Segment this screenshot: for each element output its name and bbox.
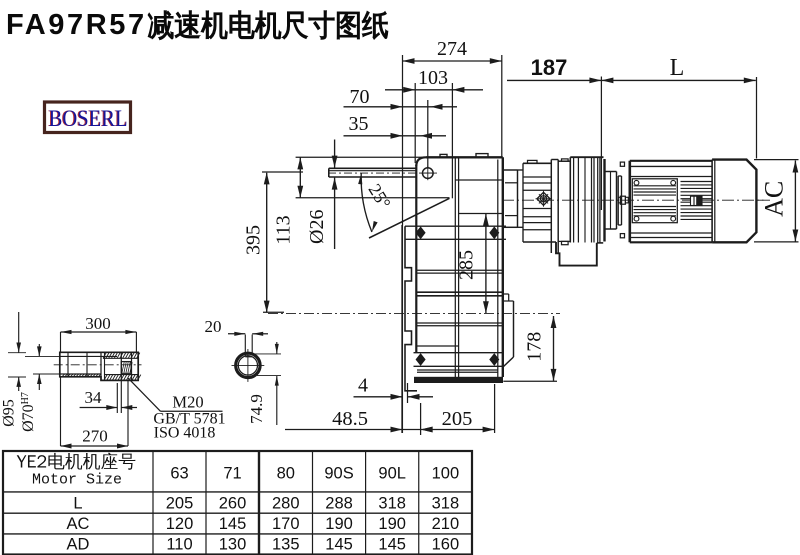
- svg-text:FA97R57: FA97R57: [6, 9, 147, 41]
- svg-text:187: 187: [531, 55, 568, 80]
- svg-text:300: 300: [85, 314, 111, 333]
- svg-text:90S: 90S: [324, 465, 353, 483]
- svg-text:145: 145: [219, 515, 247, 533]
- svg-text:205: 205: [166, 494, 194, 512]
- svg-text:M20: M20: [172, 393, 203, 412]
- svg-text:135: 135: [272, 536, 300, 554]
- svg-text:L: L: [73, 494, 82, 512]
- svg-text:120: 120: [166, 515, 194, 533]
- svg-text:130: 130: [219, 536, 247, 554]
- svg-text:160: 160: [432, 536, 460, 554]
- svg-text:145: 145: [325, 536, 353, 554]
- svg-text:318: 318: [432, 494, 460, 512]
- svg-text:100: 100: [432, 465, 460, 483]
- svg-text:74.9: 74.9: [247, 394, 266, 424]
- svg-text:178: 178: [524, 332, 546, 362]
- svg-text:48.5: 48.5: [332, 408, 368, 430]
- svg-text:Ø95: Ø95: [1, 399, 18, 427]
- svg-text:280: 280: [272, 494, 300, 512]
- svg-text:AC: AC: [760, 181, 789, 217]
- svg-text:288: 288: [325, 494, 353, 512]
- svg-text:80: 80: [277, 465, 295, 483]
- svg-text:274: 274: [437, 38, 467, 60]
- svg-text:190: 190: [378, 515, 406, 533]
- svg-text:20: 20: [205, 317, 222, 336]
- svg-text:90L: 90L: [378, 465, 406, 483]
- svg-text:285: 285: [456, 250, 478, 280]
- svg-text:63: 63: [170, 465, 188, 483]
- svg-text:110: 110: [166, 536, 192, 554]
- svg-text:318: 318: [378, 494, 406, 512]
- svg-text:AD: AD: [67, 536, 90, 554]
- svg-text:260: 260: [219, 494, 247, 512]
- svg-text:205: 205: [442, 408, 473, 430]
- svg-text:34: 34: [85, 388, 103, 407]
- svg-text:L: L: [670, 55, 685, 81]
- svg-text:71: 71: [223, 465, 241, 483]
- svg-text:ISO 4018: ISO 4018: [154, 425, 216, 442]
- svg-text:Motor Size: Motor Size: [32, 472, 122, 489]
- svg-text:210: 210: [432, 515, 460, 533]
- svg-text:BOSERL: BOSERL: [49, 106, 128, 132]
- svg-text:145: 145: [378, 536, 406, 554]
- svg-text:70: 70: [350, 86, 370, 108]
- svg-text:113: 113: [273, 215, 295, 244]
- svg-text:103: 103: [418, 67, 448, 89]
- svg-text:395: 395: [243, 225, 265, 255]
- svg-text:4: 4: [358, 375, 368, 397]
- svg-text:35: 35: [349, 113, 369, 135]
- svg-text:Ø26: Ø26: [306, 209, 328, 243]
- svg-text:AC: AC: [67, 515, 90, 533]
- svg-text:270: 270: [82, 427, 108, 446]
- svg-text:170: 170: [272, 515, 300, 533]
- svg-text:190: 190: [325, 515, 353, 533]
